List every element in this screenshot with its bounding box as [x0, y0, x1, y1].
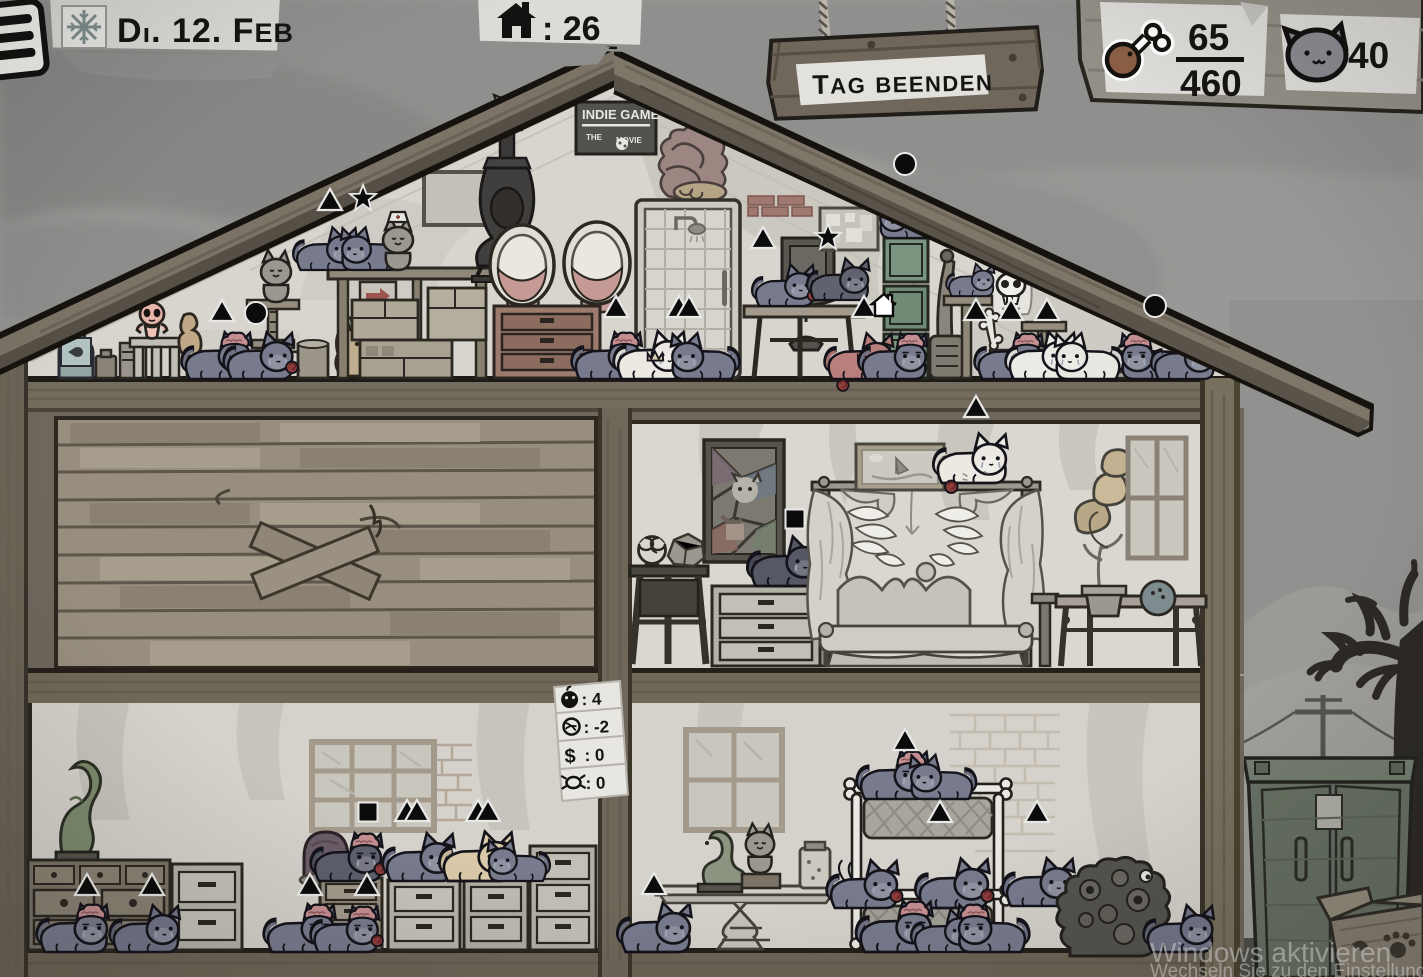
svg-text:Wechseln Sie zu den Einstellun: Wechseln Sie zu den Einstellungen, um Wi	[1150, 961, 1423, 977]
